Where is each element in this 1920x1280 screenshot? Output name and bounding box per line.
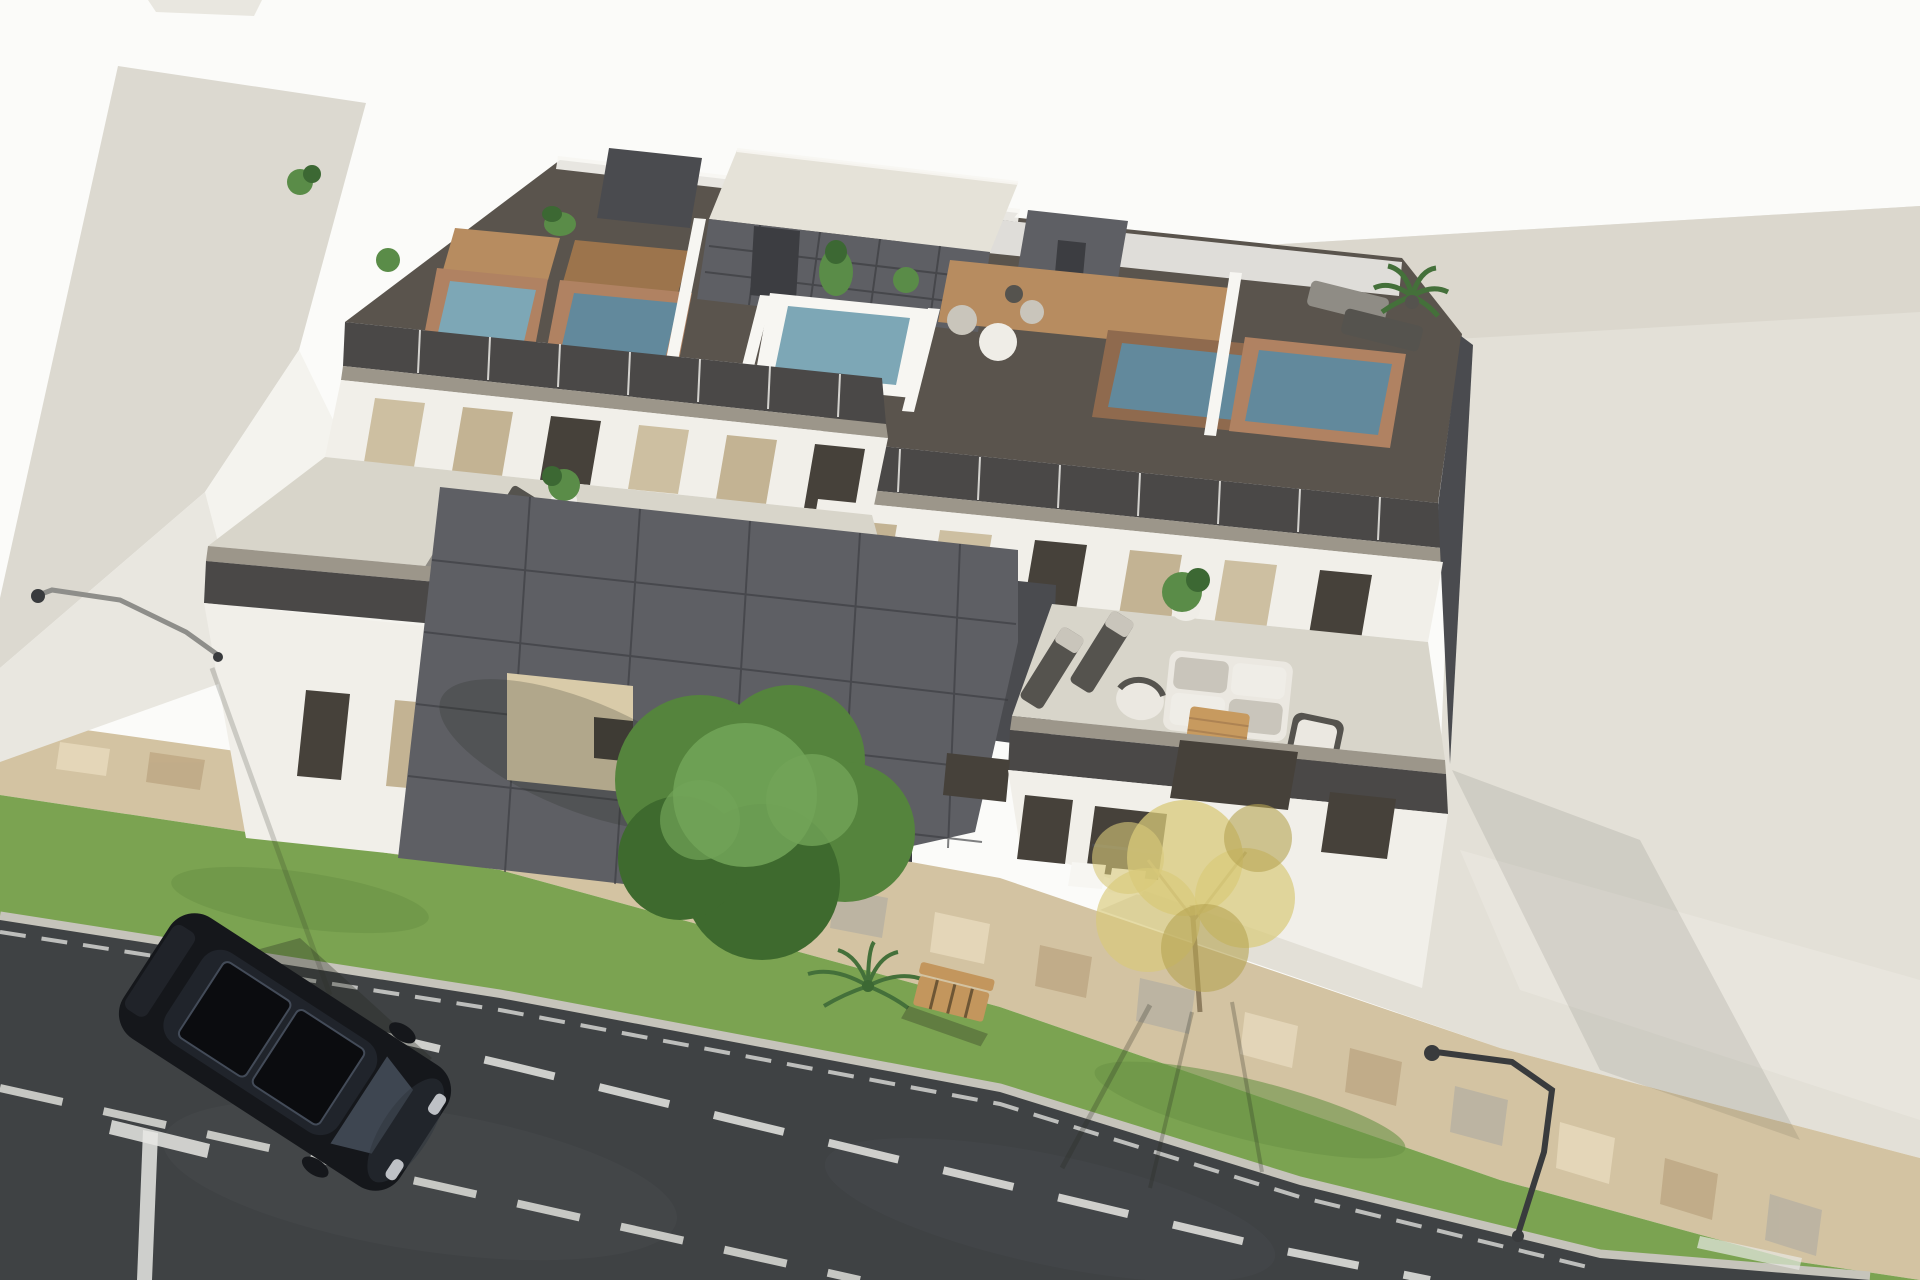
rooftop-side-table <box>1005 285 1023 303</box>
rooftop-pouf <box>1020 300 1044 324</box>
render-canvas: Aerial 3D architectural rendering of a m… <box>0 0 1920 1280</box>
terrace-plant <box>542 466 562 486</box>
shrub-center <box>862 980 874 992</box>
plant <box>542 206 562 222</box>
yellow-canopy <box>1092 822 1164 894</box>
ground-window-right <box>1017 795 1073 864</box>
lamp-base <box>1512 1230 1524 1242</box>
terrace-plant-right <box>1186 568 1210 592</box>
tree-canopy <box>766 754 858 846</box>
penthouse-stair-box-left <box>597 148 702 228</box>
penthouse-door <box>750 226 800 300</box>
plant <box>376 248 400 272</box>
plant <box>893 267 919 293</box>
plant <box>303 165 321 183</box>
yellow-canopy <box>1224 804 1292 872</box>
block-small-window <box>943 753 1010 802</box>
lamp-head <box>1424 1045 1440 1061</box>
lamp-base <box>213 652 223 662</box>
ground-window-left <box>297 690 350 780</box>
tree-canopy <box>660 780 740 860</box>
yellow-canopy <box>1161 904 1249 992</box>
tall-plant-top <box>825 240 847 264</box>
lamp-head <box>31 589 45 603</box>
ground-window-far-right <box>1321 792 1396 859</box>
inset-balcony <box>1170 740 1298 810</box>
rooftop-pouf <box>947 305 977 335</box>
palm-pot <box>1405 295 1419 309</box>
rooftop-pouf <box>979 323 1017 361</box>
aerial-render <box>0 0 1920 1280</box>
roof-pool-water <box>1245 350 1392 435</box>
sofa-cushion <box>1230 662 1287 699</box>
sofa-cushion <box>1173 656 1230 693</box>
